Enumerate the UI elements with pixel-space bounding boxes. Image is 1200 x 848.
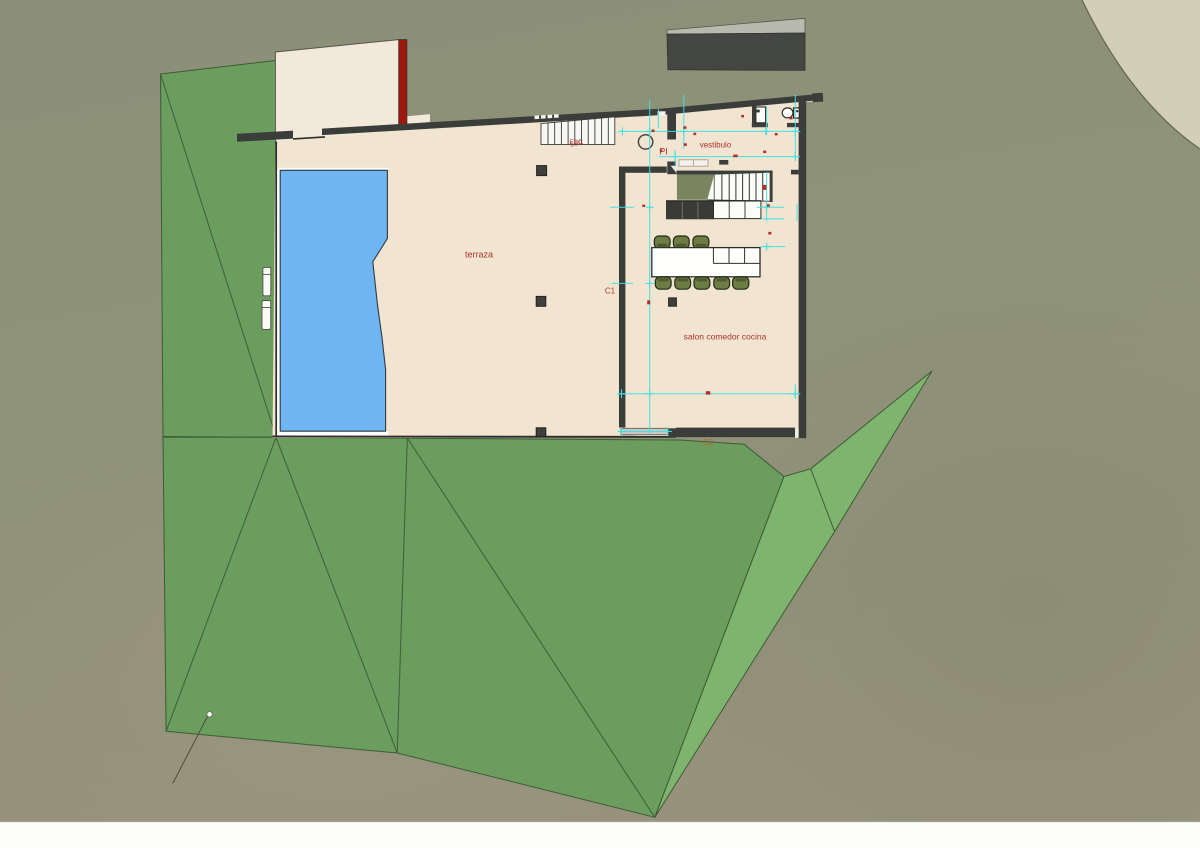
svg-text:salon comedor cocina: salon comedor cocina [684,332,767,342]
svg-text:C1: C1 [605,287,616,296]
svg-text:C2: C2 [703,438,714,447]
svg-text:terraza: terraza [465,250,493,260]
svg-text:vestibulo: vestibulo [700,141,732,150]
